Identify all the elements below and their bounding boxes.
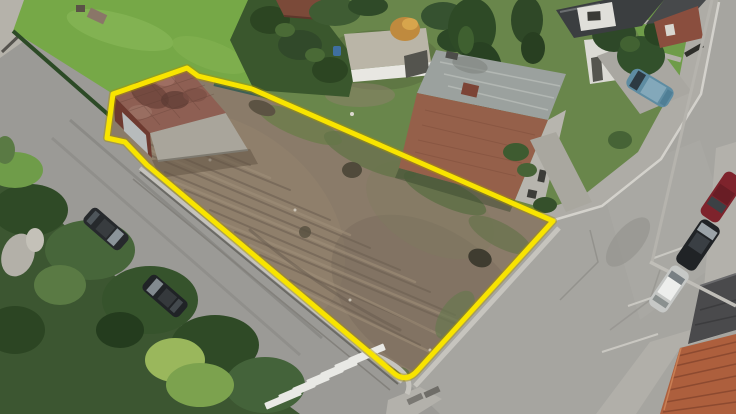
orange-bush-highlight — [402, 18, 418, 30]
window — [587, 11, 600, 21]
aerial-photo-canvas — [0, 0, 736, 414]
white-garden-garage — [344, 28, 433, 82]
aerial-photograph — [0, 0, 736, 414]
door — [665, 24, 676, 36]
blue-barrel — [333, 46, 341, 56]
